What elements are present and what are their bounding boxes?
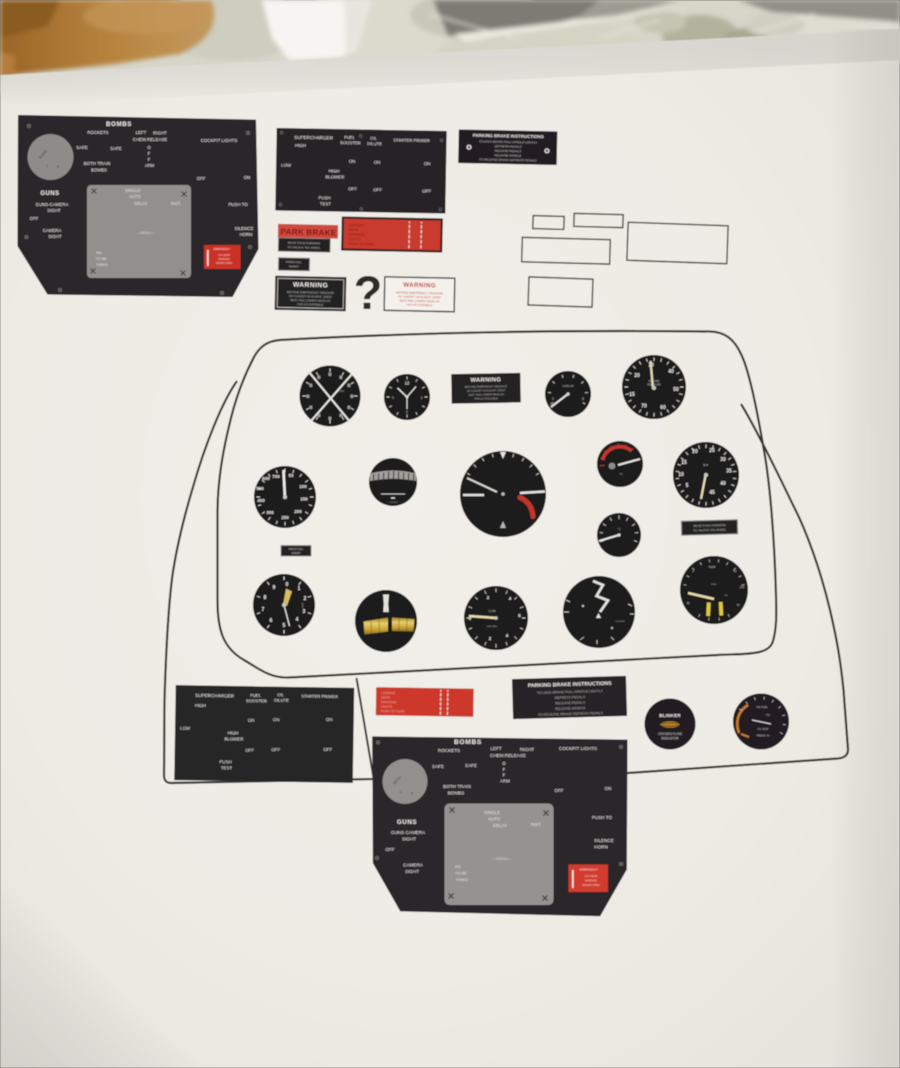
svg-text:ARM: ARM bbox=[500, 779, 510, 784]
svg-text:FAR AS POSSIBLE: FAR AS POSSIBLE bbox=[474, 396, 498, 400]
svg-text:GUNS-CAMERA: GUNS-CAMERA bbox=[36, 202, 69, 207]
svg-text:BLINKER: BLINKER bbox=[659, 713, 681, 718]
svg-text:OIL FUEL: OIL FUEL bbox=[756, 705, 768, 709]
svg-text:TO UNLOCK TAIL WHEEL: TO UNLOCK TAIL WHEEL bbox=[287, 245, 321, 250]
svg-text:LANDING: LANDING bbox=[381, 691, 396, 695]
svg-text:LEFT: LEFT bbox=[136, 130, 147, 135]
svg-text:SIGHT: SIGHT bbox=[47, 208, 61, 213]
svg-text:SHOWS OPEN: SHOWS OPEN bbox=[582, 883, 600, 887]
svg-text:2: 2 bbox=[489, 636, 492, 642]
svg-text:AUTO: AUTO bbox=[129, 194, 141, 199]
svg-text:6: 6 bbox=[406, 410, 408, 414]
svg-text:2: 2 bbox=[304, 596, 307, 602]
svg-text:FIRED: FIRED bbox=[96, 263, 108, 267]
svg-text:0: 0 bbox=[286, 582, 289, 588]
svg-text:500: 500 bbox=[256, 486, 264, 491]
svg-text:INDICATOR: INDICATOR bbox=[661, 737, 679, 741]
svg-text:9: 9 bbox=[273, 585, 276, 591]
svg-text:OIL: OIL bbox=[277, 692, 284, 697]
svg-text:PSI: PSI bbox=[766, 714, 770, 717]
svg-text:6: 6 bbox=[518, 613, 521, 619]
svg-text:HIGH: HIGH bbox=[195, 703, 206, 708]
svg-text:L: L bbox=[47, 164, 49, 168]
svg-text:SHOWS OPEN: SHOWS OPEN bbox=[216, 262, 233, 265]
svg-text:COMPASS: COMPASS bbox=[388, 501, 399, 504]
svg-text:ON: ON bbox=[374, 160, 381, 165]
svg-text:OFF: OFF bbox=[348, 186, 357, 191]
svg-text:RELEASE PEDALS: RELEASE PEDALS bbox=[555, 701, 586, 706]
svg-text:CLIMB: CLIMB bbox=[488, 610, 496, 613]
svg-text:BOMBS: BOMBS bbox=[91, 168, 107, 173]
svg-text:GEAR: GEAR bbox=[349, 228, 359, 232]
svg-text:12: 12 bbox=[405, 381, 410, 386]
svg-text:TEMP: TEMP bbox=[708, 565, 715, 569]
svg-text:LIGHTS: LIGHTS bbox=[381, 705, 393, 709]
svg-text:2: 2 bbox=[487, 595, 490, 601]
svg-text:3: 3 bbox=[421, 396, 423, 400]
svg-text:GUNS: GUNS bbox=[397, 819, 417, 826]
svg-text:35: 35 bbox=[726, 469, 732, 475]
svg-text:DILUTE: DILUTE bbox=[274, 698, 289, 703]
svg-text:RIGHT: RIGHT bbox=[153, 131, 167, 136]
svg-text:RADIO CALL: RADIO CALL bbox=[289, 548, 304, 551]
svg-text:EMERGENCY: EMERGENCY bbox=[214, 247, 231, 251]
svg-text:BOMBS: BOMBS bbox=[448, 791, 465, 796]
svg-text:CHEM.RELEASE: CHEM.RELEASE bbox=[490, 753, 526, 758]
svg-text:B.P.: B.P. bbox=[703, 463, 708, 467]
svg-text:SINGLE: SINGLE bbox=[484, 810, 500, 815]
svg-text:4: 4 bbox=[296, 617, 299, 623]
svg-text:ARM: ARM bbox=[145, 163, 155, 168]
svg-text:LOW: LOW bbox=[180, 726, 191, 731]
svg-text:BLOWER: BLOWER bbox=[224, 736, 243, 741]
svg-text:OF CANOPY IN FLIGHT, DROP: OF CANOPY IN FLIGHT, DROP bbox=[467, 388, 506, 393]
svg-text:F: F bbox=[148, 151, 151, 156]
svg-text:SILENCE: SILENCE bbox=[594, 838, 614, 843]
svg-text:50: 50 bbox=[288, 473, 294, 478]
svg-text:OFF: OFF bbox=[554, 788, 563, 793]
svg-text:BEFORE EMERGENCY RELEASE: BEFORE EMERGENCY RELEASE bbox=[465, 384, 507, 389]
svg-text:HIGH: HIGH bbox=[328, 168, 339, 173]
svg-text:50: 50 bbox=[733, 569, 737, 573]
svg-text:6: 6 bbox=[270, 618, 273, 624]
svg-text:LANDING: LANDING bbox=[349, 223, 364, 227]
svg-text:SAFE: SAFE bbox=[76, 145, 88, 150]
svg-text:TO BE: TO BE bbox=[95, 257, 107, 261]
svg-text:SAFE: SAFE bbox=[465, 763, 477, 768]
svg-text:RADIO CALL: RADIO CALL bbox=[286, 260, 303, 264]
svg-text:—AERAJ—: —AERAJ— bbox=[137, 231, 155, 235]
svg-text:15: 15 bbox=[681, 460, 687, 466]
svg-text:DESCEND: DESCEND bbox=[487, 626, 498, 628]
svg-text:OFF: OFF bbox=[271, 747, 280, 752]
svg-text:WARNING: WARNING bbox=[403, 282, 436, 290]
svg-text:200: 200 bbox=[294, 509, 302, 514]
svg-text:1: 1 bbox=[298, 586, 301, 592]
svg-text:PUSH: PUSH bbox=[318, 195, 330, 200]
svg-text:C/G GEAR: C/G GEAR bbox=[218, 254, 230, 257]
svg-text:PRESS. IN: PRESS. IN bbox=[757, 734, 770, 738]
svg-text:CAMERA: CAMERA bbox=[403, 863, 424, 868]
svg-text:ON: ON bbox=[273, 717, 280, 722]
svg-text:SIGHT: SIGHT bbox=[402, 837, 416, 842]
svg-text:100: 100 bbox=[299, 484, 307, 489]
svg-text:WARNING: WARNING bbox=[381, 700, 397, 704]
svg-text:4: 4 bbox=[506, 633, 509, 639]
svg-text:WARNING: WARNING bbox=[585, 879, 597, 883]
svg-text:SEAT AND LOWER HEAD AS: SEAT AND LOWER HEAD AS bbox=[468, 392, 504, 397]
svg-text:BOOSTER: BOOSTER bbox=[340, 140, 361, 145]
svg-text:STARTER PRIMER: STARTER PRIMER bbox=[301, 694, 338, 700]
svg-text:CALIB: CALIB bbox=[301, 602, 304, 608]
svg-text:FAR AS POSSIBLE: FAR AS POSSIBLE bbox=[406, 303, 432, 308]
svg-text:7: 7 bbox=[262, 607, 265, 613]
svg-text:BOTH TRAIN: BOTH TRAIN bbox=[84, 161, 111, 166]
svg-text:BOTH TRAIN: BOTH TRAIN bbox=[443, 784, 471, 789]
svg-text:TO BE: TO BE bbox=[455, 871, 467, 876]
svg-text:8: 8 bbox=[582, 397, 584, 401]
svg-text:F: F bbox=[503, 767, 506, 772]
svg-text:RX: RX bbox=[455, 864, 461, 869]
svg-text:PUSH TO: PUSH TO bbox=[228, 202, 248, 207]
svg-text:ON: ON bbox=[244, 175, 251, 180]
svg-text:HORN: HORN bbox=[240, 232, 253, 237]
svg-text:FUEL: FUEL bbox=[711, 584, 717, 586]
svg-text:8: 8 bbox=[264, 595, 267, 601]
svg-text:OFF: OFF bbox=[373, 187, 382, 192]
svg-text:600: 600 bbox=[262, 476, 270, 481]
svg-text:40: 40 bbox=[720, 481, 726, 487]
svg-text:SUPERCHARGER: SUPERCHARGER bbox=[195, 693, 235, 699]
svg-text:BOOSTER: BOOSTER bbox=[246, 698, 267, 703]
svg-text:20: 20 bbox=[692, 449, 698, 455]
svg-text:RIGHT: RIGHT bbox=[520, 747, 534, 752]
svg-text:DILUTE: DILUTE bbox=[367, 141, 382, 146]
svg-text:15: 15 bbox=[629, 392, 635, 398]
svg-text:WARNING: WARNING bbox=[218, 258, 230, 261]
svg-text:OXYGEN FLOW: OXYGEN FLOW bbox=[658, 732, 682, 736]
svg-text:FUEL: FUEL bbox=[250, 693, 261, 698]
svg-text:ON: ON bbox=[248, 718, 255, 723]
svg-text:150: 150 bbox=[300, 497, 308, 502]
svg-text:CHEM.RELEASE: CHEM.RELEASE bbox=[133, 137, 167, 142]
svg-text:GEAR: GEAR bbox=[381, 695, 391, 699]
svg-text:10: 10 bbox=[678, 472, 684, 478]
svg-text:5: 5 bbox=[686, 483, 689, 489]
svg-text:CARB.AIR: CARB.AIR bbox=[562, 385, 574, 388]
svg-text:ON: ON bbox=[349, 159, 356, 164]
svg-text:WARNING: WARNING bbox=[293, 282, 329, 290]
svg-text:AUTO: AUTO bbox=[488, 817, 501, 822]
svg-text:COCKPIT LIGHTS: COCKPIT LIGHTS bbox=[201, 138, 238, 143]
svg-text:50: 50 bbox=[673, 387, 679, 393]
svg-text:400: 400 bbox=[257, 498, 265, 503]
svg-text:25: 25 bbox=[709, 448, 715, 454]
svg-text:WARNING: WARNING bbox=[470, 377, 501, 384]
svg-text:ON: ON bbox=[424, 161, 431, 166]
svg-text:BOMBS: BOMBS bbox=[106, 121, 132, 128]
svg-text:EMERGENCY: EMERGENCY bbox=[580, 868, 599, 872]
svg-text:70: 70 bbox=[736, 603, 740, 607]
svg-text:W96457: W96457 bbox=[289, 264, 300, 268]
svg-text:BLOWER: BLOWER bbox=[325, 174, 344, 179]
svg-text:60: 60 bbox=[660, 405, 666, 411]
svg-text:ON: ON bbox=[326, 717, 333, 722]
svg-text:C/G GEAR: C/G GEAR bbox=[585, 874, 598, 878]
svg-text:O: O bbox=[502, 761, 506, 766]
svg-text:20: 20 bbox=[634, 373, 640, 379]
svg-text:?: ? bbox=[354, 266, 383, 319]
svg-text:3: 3 bbox=[303, 609, 306, 615]
svg-text:COCKPIT LIGHTS: COCKPIT LIGHTS bbox=[559, 746, 597, 751]
svg-text:FIRED: FIRED bbox=[456, 877, 468, 882]
svg-text:°C: °C bbox=[619, 472, 622, 476]
svg-text:FAR AS POSSIBLE: FAR AS POSSIBLE bbox=[297, 302, 323, 307]
svg-text:SIGHT: SIGHT bbox=[48, 234, 62, 239]
svg-text:35: 35 bbox=[686, 601, 690, 605]
svg-text:PUSH TO: PUSH TO bbox=[592, 815, 613, 820]
svg-text:GUNS: GUNS bbox=[40, 191, 59, 197]
svg-text:RA: RA bbox=[96, 251, 102, 255]
svg-text:LOW: LOW bbox=[281, 163, 292, 168]
svg-text:BOMBS: BOMBS bbox=[454, 739, 482, 746]
svg-text:PUSH: PUSH bbox=[219, 759, 231, 764]
svg-text:SUPERCHARGER: SUPERCHARGER bbox=[294, 135, 334, 141]
svg-text:TEST: TEST bbox=[320, 201, 332, 206]
svg-text:STARTER PRIMER: STARTER PRIMER bbox=[393, 138, 430, 144]
svg-text:SIGHT: SIGHT bbox=[405, 869, 419, 874]
svg-text:L: L bbox=[400, 790, 402, 794]
svg-text:OIL TEMP: OIL TEMP bbox=[757, 728, 768, 731]
svg-text:250: 250 bbox=[281, 515, 289, 520]
svg-text:—AERAJ—: —AERAJ— bbox=[493, 857, 512, 861]
svg-text:PUSH TO TURN: PUSH TO TURN bbox=[381, 709, 405, 713]
svg-text:HIGH: HIGH bbox=[227, 730, 238, 735]
svg-text:ROCKETS: ROCKETS bbox=[438, 748, 460, 753]
svg-text:OFF: OFF bbox=[385, 847, 394, 852]
svg-text:700: 700 bbox=[272, 474, 280, 479]
svg-text:PUSH TO TURN: PUSH TO TURN bbox=[349, 242, 374, 247]
svg-text:CAMERA: CAMERA bbox=[43, 228, 62, 233]
svg-text:300: 300 bbox=[266, 510, 274, 515]
svg-text:HORN: HORN bbox=[594, 845, 608, 850]
svg-text:CLUTCH: CLUTCH bbox=[616, 621, 625, 623]
svg-text:FUEL: FUEL bbox=[344, 135, 355, 140]
svg-text:OIL: OIL bbox=[370, 136, 378, 141]
svg-text:0: 0 bbox=[552, 397, 554, 401]
svg-text:SAFE: SAFE bbox=[432, 764, 444, 769]
svg-text:OFF: OFF bbox=[422, 189, 431, 194]
svg-text:LEFT: LEFT bbox=[490, 746, 501, 751]
svg-text:SINGLE: SINGLE bbox=[125, 188, 141, 193]
svg-text:F: F bbox=[503, 773, 506, 778]
svg-text:ROCKETS: ROCKETS bbox=[87, 130, 108, 135]
svg-text:HIGH: HIGH bbox=[295, 143, 306, 148]
svg-text:4: 4 bbox=[509, 596, 512, 602]
svg-text:100: 100 bbox=[740, 585, 745, 589]
svg-text:ON: ON bbox=[605, 786, 612, 791]
svg-text:SAFE: SAFE bbox=[110, 146, 122, 151]
svg-text:PARK BRAKE: PARK BRAKE bbox=[280, 227, 336, 237]
svg-text:DELAY: DELAY bbox=[493, 823, 507, 828]
svg-text:OFF: OFF bbox=[245, 748, 254, 753]
svg-text:INST.: INST. bbox=[531, 822, 542, 827]
svg-text:LIGHTS: LIGHTS bbox=[349, 237, 362, 241]
svg-text:OFF: OFF bbox=[197, 176, 206, 181]
svg-text:9: 9 bbox=[392, 396, 394, 400]
svg-text:45: 45 bbox=[709, 490, 715, 496]
svg-text:5: 5 bbox=[283, 623, 286, 629]
svg-text:F: F bbox=[148, 157, 151, 162]
svg-text:TEST: TEST bbox=[221, 765, 233, 770]
svg-text:DELAY: DELAY bbox=[134, 201, 148, 206]
svg-text:INST.: INST. bbox=[171, 201, 181, 206]
svg-text:40: 40 bbox=[668, 369, 674, 375]
svg-text:WARNING: WARNING bbox=[349, 232, 365, 236]
svg-text:W96457: W96457 bbox=[291, 552, 301, 555]
svg-text:SILENCE: SILENCE bbox=[235, 226, 254, 231]
svg-text:30: 30 bbox=[720, 457, 726, 463]
svg-text:OFF: OFF bbox=[30, 216, 39, 221]
svg-text:GUNS CAMERA: GUNS CAMERA bbox=[391, 830, 426, 835]
svg-text:OFF: OFF bbox=[323, 747, 332, 752]
svg-text:70: 70 bbox=[641, 404, 647, 410]
svg-text:°C: °C bbox=[618, 527, 621, 531]
